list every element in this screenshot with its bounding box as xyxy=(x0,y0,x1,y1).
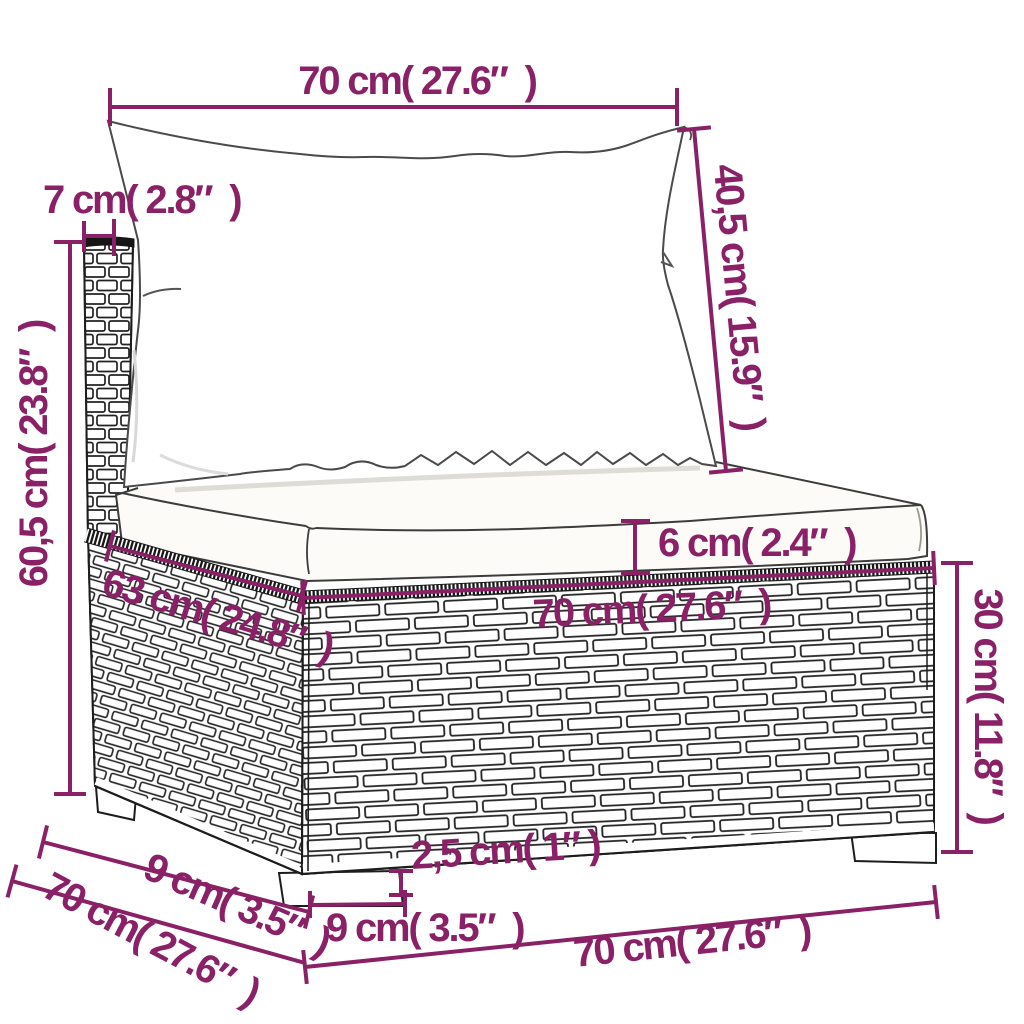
svg-text:70 cm( 27.6″ ): 70 cm( 27.6″ ) xyxy=(298,59,536,103)
svg-text:30 cm( 11.8″ ): 30 cm( 11.8″ ) xyxy=(966,588,1010,824)
svg-text:60,5 cm( 23.8″ ): 60,5 cm( 23.8″ ) xyxy=(12,320,56,587)
svg-text:6 cm( 2.4″ ): 6 cm( 2.4″ ) xyxy=(658,521,856,565)
svg-text:9 cm( 3.5″ ): 9 cm( 3.5″ ) xyxy=(326,906,524,950)
svg-text:7 cm( 2.8″ ): 7 cm( 2.8″ ) xyxy=(43,178,241,222)
